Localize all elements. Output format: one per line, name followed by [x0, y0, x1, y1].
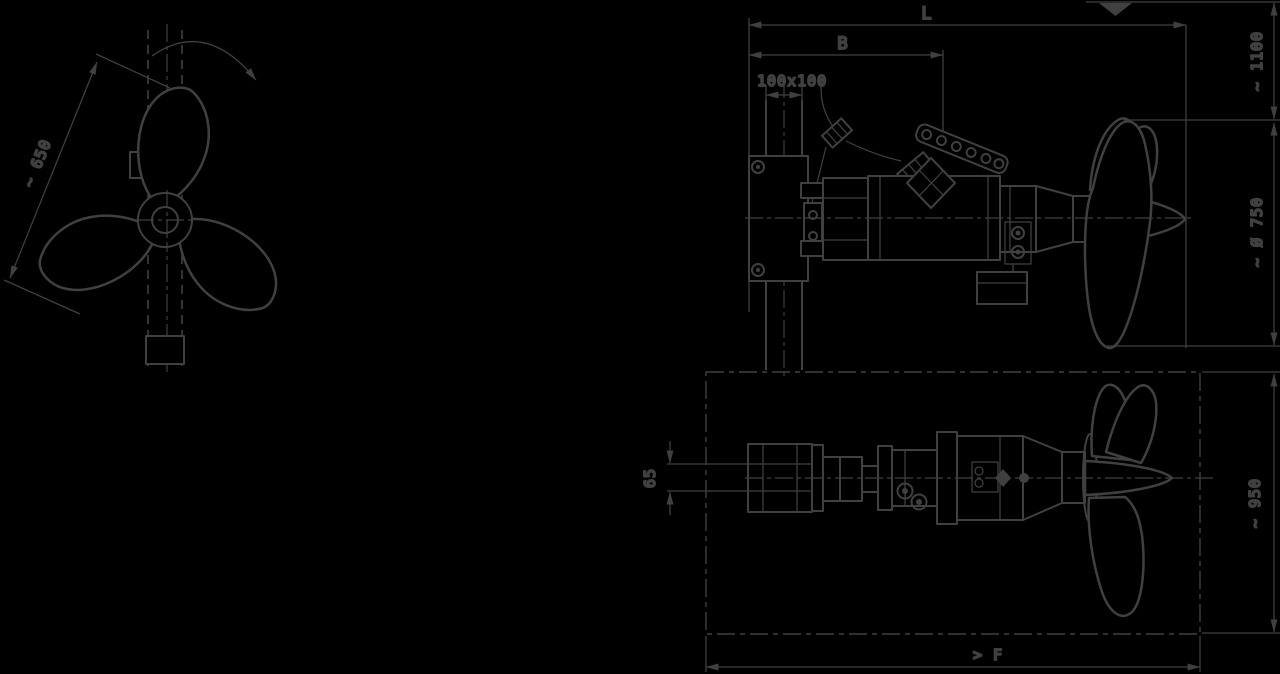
rotation-direction-arrow: [152, 42, 256, 80]
guide-rail-lines: [667, 464, 748, 491]
power-cable-run: [846, 141, 901, 161]
dim-label-propeller-sweep: ~ 650: [20, 137, 55, 190]
propeller-front-view: ~ 650: [4, 24, 293, 374]
mixer-side-view: L B 100x100 ~ 1100 ~ Ø 750: [745, 2, 1280, 378]
propeller-side-view: [1085, 118, 1185, 348]
dimension-floor-clearance: > F: [706, 636, 1200, 672]
technical-drawing-canvas: ~ 650: [0, 0, 1280, 674]
dimension-clearance-width: ~ 950: [1202, 372, 1280, 633]
dimension-submergence: ~ 1100: [1124, 3, 1280, 120]
dim-label-total-length: L: [921, 4, 932, 24]
dimension-mast-section: 100x100: [757, 72, 827, 100]
mixer-dimension-drawing: ~ 650: [0, 0, 1280, 674]
junction-box: [977, 264, 1027, 304]
dim-label-floor-clearance: > F: [973, 646, 1003, 664]
dim-label-rail-gap: 65: [641, 468, 659, 488]
mixer-top-view: 65 ~ 950 > F: [641, 372, 1280, 672]
dim-label-mast-section: 100x100: [757, 72, 827, 90]
dim-label-clearance-width: ~ 950: [1246, 478, 1264, 528]
dim-label-min-submergence: ~ 1100: [1248, 31, 1266, 91]
lower-guide-bracket: [146, 336, 184, 364]
cable-holder: [822, 118, 852, 147]
dim-label-propeller-diameter: ~ Ø 750: [1248, 197, 1266, 267]
mast-claw-upper: [801, 183, 823, 198]
wall-mounting-plate: [749, 18, 808, 312]
water-surface: [1086, 2, 1280, 16]
motor-body-side: [801, 158, 1099, 260]
dim-label-bracket-distance: B: [837, 34, 848, 54]
propeller-top-view: [1083, 385, 1172, 616]
mast-claw-lower: [801, 241, 823, 256]
water-level-icon: [1099, 3, 1132, 16]
dimension-rail-gap: 65: [641, 441, 670, 515]
